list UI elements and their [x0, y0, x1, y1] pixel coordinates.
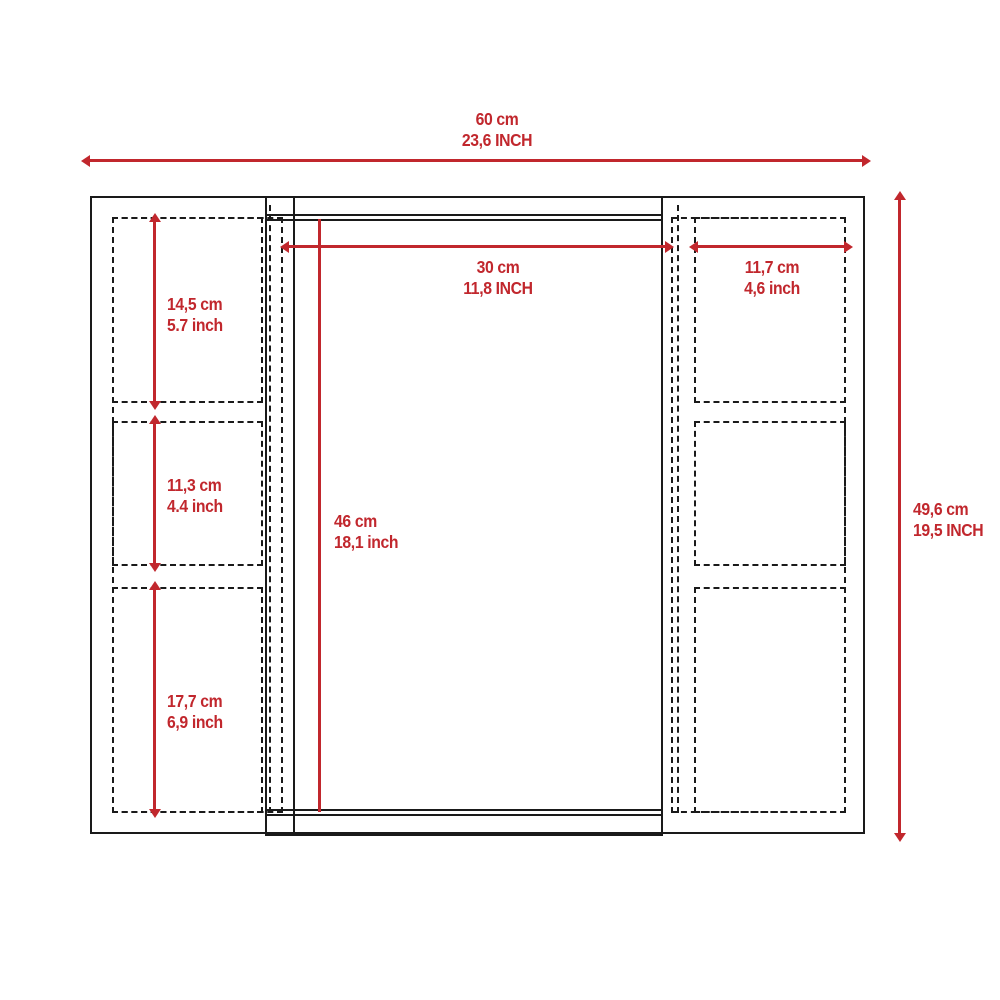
overall-width-arrow: [89, 159, 863, 162]
dimension-diagram: 60 cm 23,6 INCH 14,5 cm 5.7 inch 11,3 cm…: [0, 0, 1000, 1000]
right-shelf-bottom-compartment: [694, 587, 846, 813]
right-shelf-middle-compartment: [694, 421, 846, 566]
left-shelf-top-label: 14,5 cm 5.7 inch: [167, 294, 223, 336]
overall-height-arrow: [898, 199, 901, 834]
left-shelf-top-cm: 14,5 cm: [167, 294, 223, 315]
right-wing-hidden-rail: [677, 205, 679, 813]
left-shelf-top-inch: 5.7 inch: [167, 315, 223, 336]
left-shelf-middle-label: 11,3 cm 4.4 inch: [167, 475, 223, 517]
left-shelf-bottom-arrow: [153, 589, 156, 810]
overall-width-label: 60 cm 23,6 INCH: [407, 109, 587, 151]
mirror-height-cm: 46 cm: [334, 511, 398, 532]
left-shelf-middle-arrow: [153, 423, 156, 564]
side-shelf-width-cm: 11,7 cm: [682, 257, 862, 278]
left-wing-hidden-rail: [269, 205, 271, 813]
overall-width-inch: 23,6 INCH: [407, 130, 587, 151]
mirror-width-inch: 11,8 INCH: [408, 278, 588, 299]
mirror-bottom-frame-line: [267, 809, 661, 811]
side-shelf-width-label: 11,7 cm 4,6 inch: [682, 257, 862, 299]
mirror-width-arrow: [288, 245, 666, 248]
mirror-height-inch: 18,1 inch: [334, 532, 398, 553]
overall-width-cm: 60 cm: [407, 109, 587, 130]
side-shelf-width-inch: 4,6 inch: [682, 278, 862, 299]
mirror-width-cm: 30 cm: [408, 257, 588, 278]
left-shelf-middle-inch: 4.4 inch: [167, 496, 223, 517]
left-shelf-bottom-cm: 17,7 cm: [167, 691, 223, 712]
left-shelf-top-arrow: [153, 221, 156, 402]
mirror-top-frame-inner-line: [267, 219, 661, 221]
mirror-width-label: 30 cm 11,8 INCH: [408, 257, 588, 299]
left-shelf-bottom-inch: 6,9 inch: [167, 712, 223, 733]
mirror-door-stile-line: [293, 196, 295, 836]
overall-height-inch: 19,5 INCH: [913, 520, 983, 541]
mirror-height-label: 46 cm 18,1 inch: [334, 511, 398, 553]
overall-height-label: 49,6 cm 19,5 INCH: [913, 499, 983, 541]
mirror-height-line: [318, 219, 321, 812]
left-shelf-middle-cm: 11,3 cm: [167, 475, 223, 496]
left-shelf-bottom-label: 17,7 cm 6,9 inch: [167, 691, 223, 733]
mirror-top-frame-line: [267, 214, 661, 216]
mirror-bottom-frame-inner-line: [267, 814, 661, 816]
side-shelf-width-arrow: [697, 245, 845, 248]
overall-height-cm: 49,6 cm: [913, 499, 983, 520]
